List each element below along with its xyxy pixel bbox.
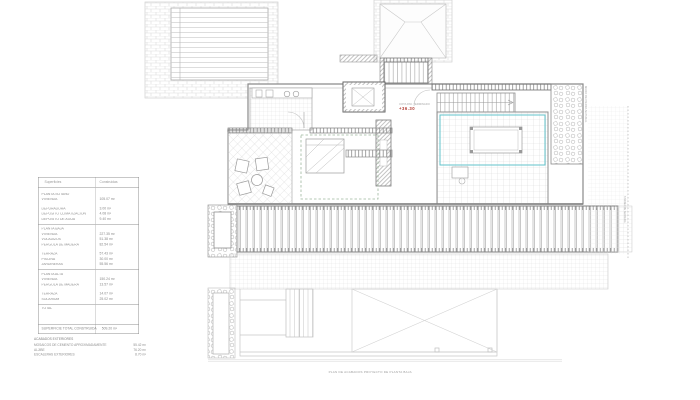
bidet-icon (266, 90, 273, 97)
table-row (39, 222, 139, 224)
paving-east (588, 106, 628, 258)
sheet-rule-lines (208, 360, 562, 362)
elevation-value: +36.30 (399, 106, 439, 111)
row-label: PLANTA ALTA (39, 273, 95, 276)
row-value: 150.24 m² (95, 278, 139, 281)
notes-list: MOSAICOS DE CEMENTO APROXIMADAMENTE 55.4… (34, 343, 146, 357)
row-label: PLANTA SÓTANO (39, 193, 95, 196)
table-icon (252, 175, 263, 186)
total-label: SUPERFICIE TOTAL CONSTRUIDA (39, 327, 97, 330)
row-value: 227.35 m² (95, 233, 139, 236)
planter (214, 212, 231, 248)
stone-wall-east (551, 84, 583, 164)
row-label: PÉRGOLA DE MADERA (39, 243, 95, 246)
wood-deck (208, 205, 632, 257)
row-label: SOLARIUM (39, 298, 95, 301)
note-row: ESCALERAS EXTERIORES 8.70 m² (34, 352, 146, 357)
stone-wall-annotation: MURO DE PIEDRA NATURAL (584, 86, 587, 123)
terrace-lounge (228, 132, 292, 204)
row-label: TERRAZA (39, 253, 95, 256)
row-label: VIVIENDA (39, 278, 95, 281)
table-row: TOTAL (39, 306, 139, 311)
row-value: 3.00 m² (95, 207, 139, 210)
lower-level (208, 288, 497, 358)
toilet-icon (256, 90, 262, 97)
paving-band (230, 254, 608, 289)
row-label: DEPÓSITO DE AGUA (39, 218, 95, 221)
row-value: 51.38 m² (95, 238, 139, 241)
total-value: 509.20 m² (97, 327, 139, 330)
floor-plan-sheet: Superficies Construidas PLANTA SÓTANO VI… (0, 0, 700, 400)
note-value: 8.70 m² (129, 352, 146, 357)
exterior-stair-top (340, 55, 432, 84)
row-value: 55.56 m² (95, 263, 139, 266)
column-construidas: Construidas (95, 181, 139, 184)
table-row (39, 302, 139, 304)
wardrobe-icon (346, 150, 392, 157)
bed-icon (470, 127, 522, 153)
row-value: 14.07 m² (95, 293, 139, 296)
row-value: 13.57 m² (95, 283, 139, 286)
planter (213, 293, 229, 354)
row-label: VOLADIZOS (39, 238, 95, 241)
kitchen-bath (250, 88, 312, 130)
elevation-marker: COTA PAV. TERMINADO +36.30 (399, 103, 479, 119)
column-superficies: Superficies (39, 181, 95, 184)
armchair-icon (235, 159, 249, 173)
row-label: TERRAZA (39, 293, 95, 296)
master-room (437, 112, 548, 204)
row-label: PISCINA (39, 258, 95, 261)
row-label: TOTAL (39, 307, 95, 310)
row-label: PÉRGOLA DE MADERA (39, 283, 95, 286)
row-label: PLANTA BAJA (39, 228, 95, 231)
row-value: 25.02 m² (95, 298, 139, 301)
row-value: 82.54 m² (95, 243, 139, 246)
notes-title: ACABADOS EXTERIORES (34, 337, 146, 342)
row-value: 105.07 m² (95, 198, 139, 201)
row-label: DEPURADORA (39, 207, 95, 210)
table-divider (96, 178, 97, 334)
row-label: VIVIENDA (39, 233, 95, 236)
row-value: 57.43 m² (95, 253, 139, 256)
table-header: Superficies Construidas (39, 178, 139, 189)
desk-icon (452, 167, 468, 178)
row-value: 9.40 m² (95, 218, 139, 221)
table-row (39, 268, 139, 270)
armchair-icon (237, 181, 252, 196)
armchair-icon (255, 157, 269, 171)
roof-outline (374, 0, 452, 62)
row-value: 30.00 m² (95, 258, 139, 261)
table-rows: PLANTA SÓTANO VIVIENDA 105.07 m² (39, 188, 139, 312)
deck-annotation: TARIMA DE MADERA (623, 196, 626, 223)
note-label: ESCALERAS EXTERIORES (34, 352, 129, 357)
area-table: Superficies Construidas PLANTA SÓTANO VI… (38, 177, 138, 333)
table-total-row: SUPERFICIE TOTAL CONSTRUIDA 509.20 m² (39, 324, 139, 334)
row-label: JARDINERAS (39, 263, 95, 266)
row-value: 4.08 m² (95, 213, 139, 216)
exterior-finishes-notes: ACABADOS EXTERIORES MOSAICOS DE CEMENTO … (34, 337, 146, 377)
row-label: VIVIENDA (39, 198, 95, 201)
row-label: DEPÓSITO CLIMATIZACIÓN (39, 213, 95, 216)
caption-text: PLAN DE ACABADOS PROYECTO DE PLANTA BAJA (328, 371, 411, 374)
sheet-caption: PLAN DE ACABADOS PROYECTO DE PLANTA BAJA (230, 362, 510, 380)
